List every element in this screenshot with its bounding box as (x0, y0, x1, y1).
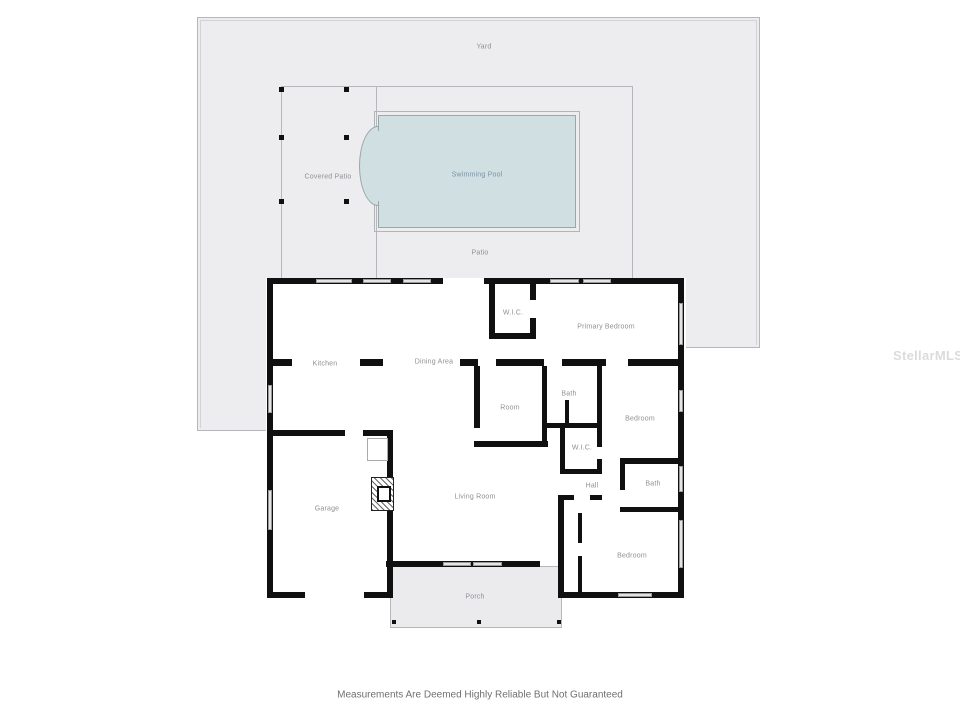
porch-post (392, 620, 396, 624)
wall-bedroom1-left (597, 366, 602, 447)
label-living-room: Living Room (454, 494, 495, 501)
wall-bedroom2-closet-b (578, 556, 582, 592)
window-primary-1 (550, 279, 579, 283)
label-porch: Porch (465, 594, 484, 601)
label-bath-1: Bath (561, 391, 576, 398)
wall-kitchen-stub (267, 359, 292, 366)
window-living-2 (473, 562, 502, 566)
label-bedroom-2: Bedroom (617, 553, 647, 560)
label-swimming-pool: Swimming Pool (452, 172, 503, 179)
patio-border-right (632, 86, 633, 280)
patio-post (344, 135, 349, 140)
wall-dining-stub (460, 359, 478, 366)
yard-border-bottom-right (682, 347, 760, 348)
wall-kitchen-bottom-a (267, 430, 345, 436)
wall-bedroom2-left (558, 495, 564, 598)
window-kitchen-left (268, 385, 272, 413)
wall-wic1-left (489, 284, 495, 338)
wall-bath2-left (620, 458, 625, 490)
label-room: Room (500, 405, 519, 412)
patio-post (344, 199, 349, 204)
label-wic-primary: W.I.C. (503, 310, 523, 317)
wall-room-left (474, 366, 480, 428)
patio-post (279, 135, 284, 140)
disclaimer-text: Measurements Are Deemed Highly Reliable … (337, 690, 623, 701)
yard-border-right (759, 17, 760, 348)
wall-bath2-bottom (620, 507, 684, 512)
wall-wic1-right-a (530, 284, 536, 300)
label-bedroom-1: Bedroom (625, 416, 655, 423)
wall-garage-bottom-a (267, 592, 305, 598)
label-dining-area: Dining Area (415, 359, 453, 366)
window-bedroom2-right (679, 520, 683, 568)
patio-border-left (281, 86, 282, 280)
patio-border-top (281, 86, 632, 87)
label-patio: Patio (472, 250, 489, 257)
wall-wic2-right-lower (597, 459, 602, 474)
window-kitchen-2 (363, 279, 391, 283)
window-dining (403, 279, 431, 283)
window-bedroom2-bottom (618, 593, 652, 597)
floor-plan: Yard Covered Patio Swimming Pool Patio W… (0, 0, 960, 720)
window-living-1 (443, 562, 471, 566)
label-primary-bedroom: Primary Bedroom (577, 324, 634, 331)
porch-post (477, 620, 481, 624)
fireplace-firebox (377, 486, 391, 502)
mls-watermark: StellarMLS (893, 348, 960, 363)
label-covered-patio: Covered Patio (305, 174, 352, 181)
yard-inner-border-top (200, 20, 757, 21)
porch-post (557, 620, 561, 624)
wall-garage-right-lower (387, 510, 393, 598)
wall-bath1-divider (565, 400, 569, 423)
patio-post (279, 87, 284, 92)
house-bedroom-wing (556, 430, 686, 600)
patio-post (344, 87, 349, 92)
yard-border-bottom-left (197, 430, 270, 431)
wall-mid-horizontal-b (496, 359, 544, 366)
yard-border-left (197, 17, 198, 431)
window-primary-right (679, 303, 683, 345)
wall-bath2-top (620, 458, 684, 464)
wall-living-bottom-b (504, 561, 540, 567)
label-garage: Garage (315, 506, 340, 513)
wall-kitchen-island (360, 359, 383, 366)
yard-inner-border-left (200, 20, 201, 428)
wall-bath1-bottom (542, 423, 602, 428)
window-bedroom1-right (679, 390, 683, 412)
wall-mid-horizontal-c (562, 359, 606, 366)
label-bath-2: Bath (645, 481, 660, 488)
wall-left (267, 278, 273, 598)
wall-room-bottom (474, 441, 548, 447)
wall-living-bottom-a (386, 561, 442, 567)
yard-area-left-strip (197, 17, 270, 431)
yard-border-top (197, 17, 760, 18)
pool-curve-join (378, 131, 382, 201)
wall-wic1-bottom (489, 333, 536, 339)
wall-mid-horizontal-d (628, 359, 684, 366)
wall-room-right (542, 366, 547, 446)
wall-wic1-right-b (530, 318, 536, 339)
wall-wic2-left (560, 428, 565, 474)
utility-closet (367, 438, 388, 461)
label-hall: Hall (586, 483, 599, 490)
label-yard: Yard (476, 44, 491, 51)
window-kitchen-1 (316, 279, 352, 283)
wall-wic2-bottom (560, 469, 602, 474)
window-garage-left (268, 490, 272, 530)
label-wic-hall: W.I.C. (572, 445, 592, 452)
wall-bedroom2-closet-a (578, 513, 582, 543)
yard-inner-border-right (756, 20, 757, 345)
window-bath2-right (679, 466, 683, 492)
wall-hall-bottom-b (590, 495, 602, 500)
label-kitchen: Kitchen (313, 361, 338, 368)
patio-post (279, 199, 284, 204)
window-primary-2 (583, 279, 611, 283)
